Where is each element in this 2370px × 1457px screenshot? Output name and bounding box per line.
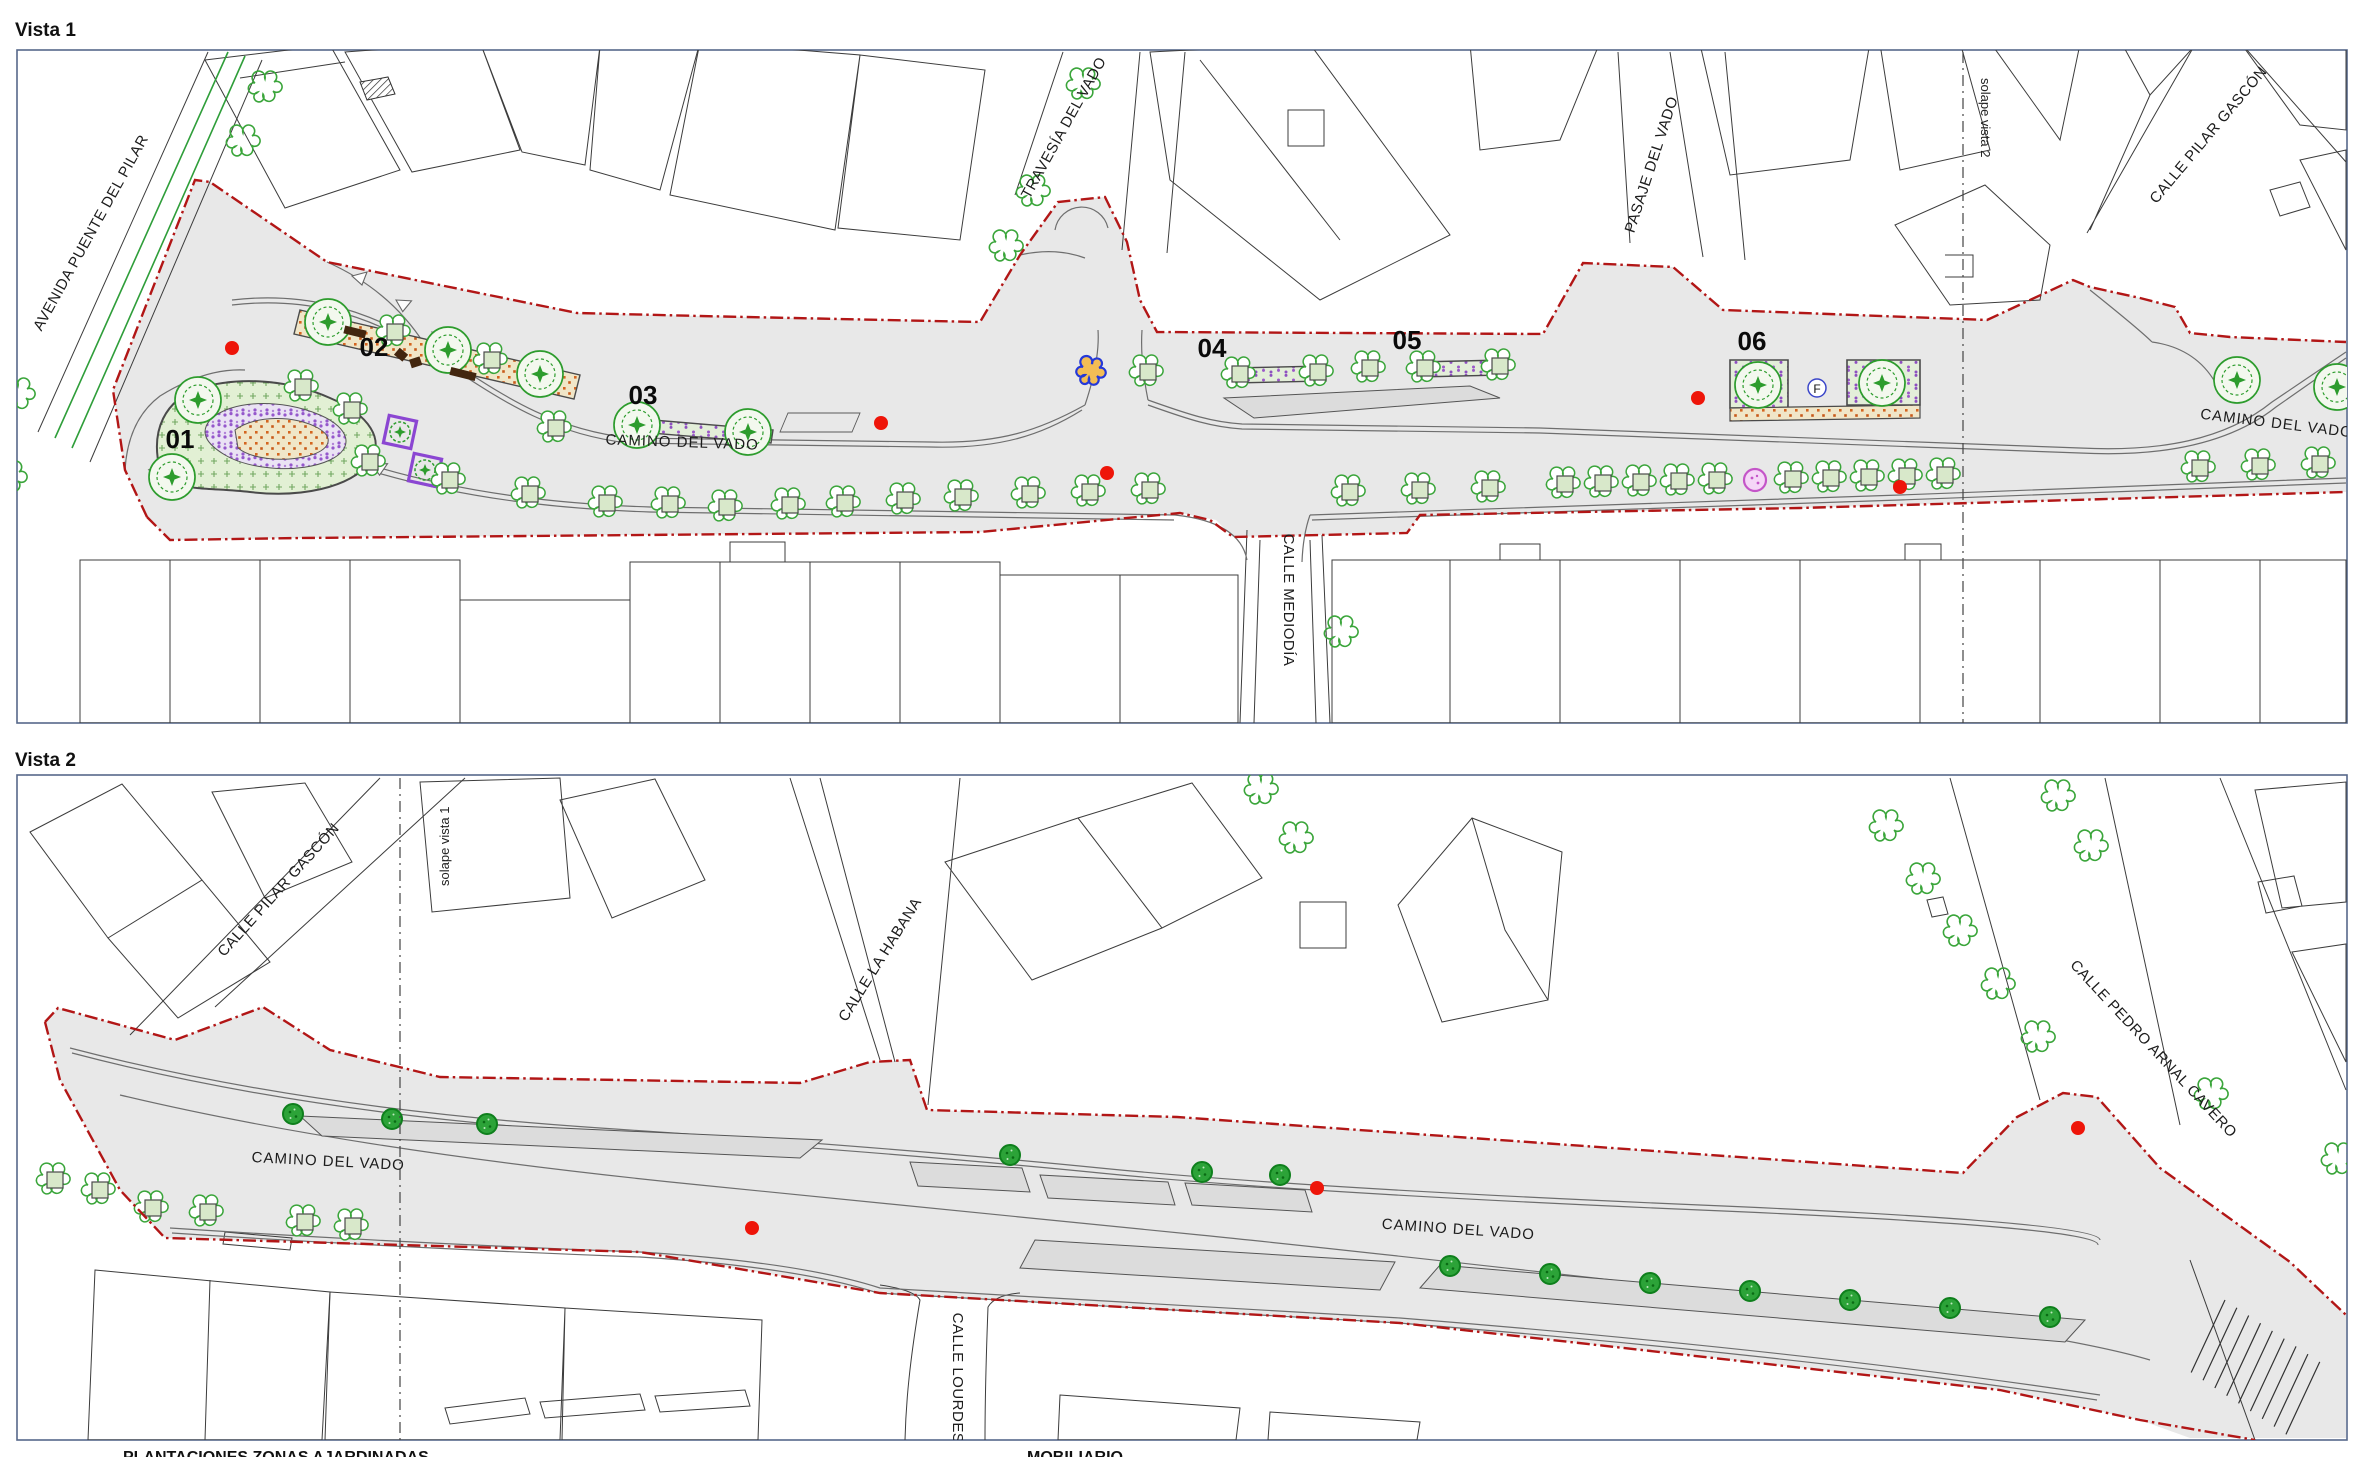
red-dot-marker <box>2071 1121 2085 1135</box>
new-tree-icon <box>1740 1281 1760 1301</box>
zone-label-05: 05 <box>1393 325 1422 355</box>
new-tree-icon <box>1192 1162 1212 1182</box>
vista2-title: Vista 2 <box>15 750 76 771</box>
new-tree-icon <box>283 1104 303 1124</box>
red-dot-marker <box>225 341 239 355</box>
zone-label-06: 06 <box>1738 326 1767 356</box>
legend-furniture-title: MOBILIARIO <box>1027 1449 1123 1457</box>
garden-tree-icon <box>1735 362 1781 408</box>
new-tree-icon <box>1270 1165 1290 1185</box>
legend-plantings-title: PLANTACIONES ZONAS AJARDINADAS <box>123 1449 429 1457</box>
zone-label-02: 02 <box>360 332 389 362</box>
garden-tree-icon <box>149 454 195 500</box>
new-tree-icon <box>1640 1273 1660 1293</box>
overlap-label-vista2: solape vista 2 <box>1978 78 1993 158</box>
garden-tree-icon <box>2214 357 2260 403</box>
new-tree-icon <box>2040 1307 2060 1327</box>
red-dot-marker <box>1310 1181 1324 1195</box>
zone-label-01: 01 <box>166 424 195 454</box>
new-tree-icon <box>477 1114 497 1134</box>
magenta-tree-icon <box>1744 469 1766 491</box>
new-tree-icon <box>1940 1298 1960 1318</box>
new-tree-icon <box>382 1109 402 1129</box>
new-tree-icon <box>1840 1290 1860 1310</box>
zone-label-03: 03 <box>629 380 658 410</box>
red-dot-marker <box>1893 480 1907 494</box>
plan-canvas: Vista 1 <box>0 0 2370 1457</box>
street-label-calle-lourdes: CALLE LOURDES <box>949 1313 966 1444</box>
garden-tree-icon <box>175 377 221 423</box>
red-dot-marker <box>1691 391 1705 405</box>
new-tree-icon <box>1000 1145 1020 1165</box>
garden-tree-icon <box>305 299 351 345</box>
fountain-letter: F <box>1813 382 1820 396</box>
red-dot-marker <box>874 416 888 430</box>
street-label-calle-mediodia: CALLE MEDIODÍA <box>1280 534 1297 667</box>
new-tree-icon <box>1540 1264 1560 1284</box>
garden-tree-icon <box>517 351 563 397</box>
new-tree-icon <box>1440 1256 1460 1276</box>
garden-tree-icon <box>425 327 471 373</box>
vista1-title: Vista 1 <box>15 20 76 41</box>
overlap-label-vista1: solape vista 1 <box>437 807 452 887</box>
garden-tree-icon <box>2314 364 2360 410</box>
zone-05-strip <box>1351 349 1515 382</box>
red-dot-marker <box>745 1221 759 1235</box>
garden-tree-icon <box>1859 360 1905 406</box>
red-dot-marker <box>1100 466 1114 480</box>
zone-label-04: 04 <box>1198 333 1227 363</box>
